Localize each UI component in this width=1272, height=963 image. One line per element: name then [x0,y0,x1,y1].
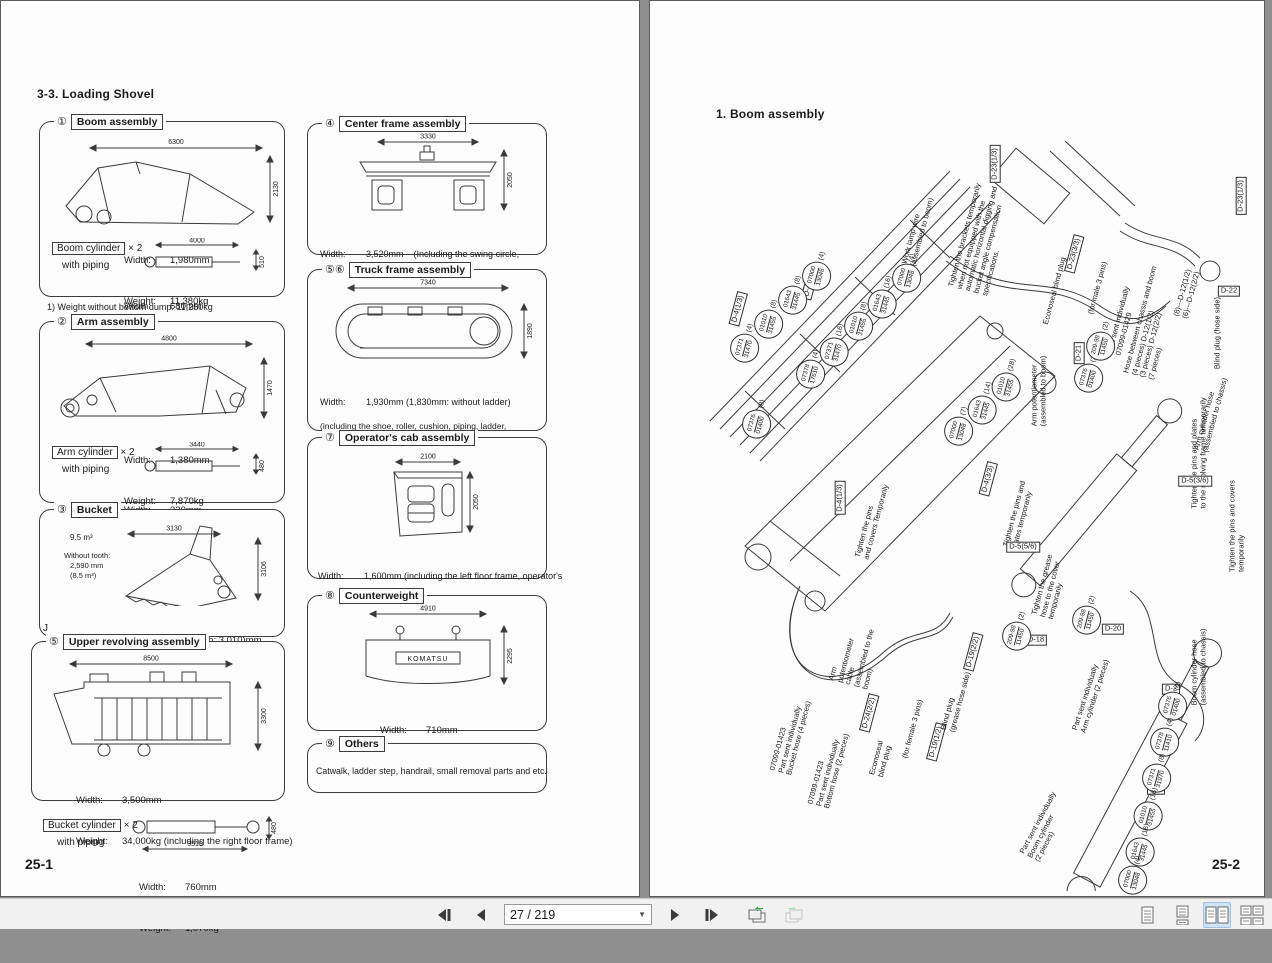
svg-text:4800: 4800 [161,336,177,343]
first-page-button[interactable] [430,902,458,928]
page-layout-group [1133,899,1266,930]
document-page-right: 1. Boom assembly Work lamp wire (assembl… [649,0,1265,897]
facing-view-button[interactable] [1203,902,1231,928]
diagram-annotation: 07099-01423 Part sent individually Botto… [807,728,852,809]
page-number-input[interactable]: 27 / 219 ▼ [504,904,652,925]
detail-ref-label: D-5(3/6) [1178,476,1212,487]
detail-ref-label: D-19(2/2) [963,632,983,671]
others-box: ⑨Others Catwalk, ladder step, handrail, … [307,743,547,793]
truck-frame-box: ⑤⑥Truck frame assembly 7340 1890 Width:1… [307,269,547,431]
detail-ref-label: D-4(3/3) [979,461,998,496]
svg-text:2100: 2100 [420,454,436,461]
others-text: Catwalk, ladder step, handrail, small re… [316,766,547,778]
item-number: ⑨ [325,739,335,750]
svg-text:2130: 2130 [273,181,280,197]
svg-text:3130: 3130 [166,526,182,533]
boom-assembly-box: ①Boom assembly 6300 2130 Width:1,980mm W… [39,121,285,297]
svg-text:2295: 2295 [507,648,514,664]
diagram-annotation: Blind plug (hose side) [1214,297,1223,369]
detail-ref-label: D-22 [1218,286,1240,297]
diagram-annotation: (for female 3 pins) [901,699,925,760]
boom-cylinder-drawing: 4000 510 [140,238,282,272]
part-number-circle: 0700013048(4) [799,248,837,294]
with-piping-note: with piping [57,837,104,848]
svg-text:7340: 7340 [420,280,436,287]
chevron-down-icon[interactable]: ▼ [638,910,646,919]
item-number: ⑤ [49,637,59,648]
bucket-drawing: 3130 3106 9.5 m³ Without tooth: 2,590 mm… [40,514,286,606]
single-page-view-button[interactable] [1133,902,1161,928]
diagram-annotation: (for male 3 pins) [1087,261,1109,316]
part-number-circle: 0101031455(28) [988,355,1027,404]
arm-cylinder-label: Arm cylinder × 2 [52,446,135,459]
next-page-button[interactable] [661,902,689,928]
part-number-circle: 209-9811450(2) [1083,318,1121,364]
diagram-annotation: Arm potentiometer cable (assembled to th… [827,622,884,691]
svg-text:(8.5 m³): (8.5 m³) [70,571,97,580]
arm-cylinder-drawing: 3440 480 [140,442,282,476]
detail-ref-label: D-5(5/6) [1006,542,1040,553]
counterweight-box: ⑧Counterweight 4910 2295 KOMATSU Width:7… [307,595,547,731]
pdf-toolbar: 27 / 219 ▼ [0,898,1272,929]
boom-drawing: 6300 2130 [40,128,286,228]
item-number: ① [57,117,67,128]
bucket-cylinder-label: Bucket cylinder × 2 [43,819,138,832]
arm-drawing: 4800 1470 [40,328,286,426]
diagram-annotation: Blind plug (grease hose side) [940,669,973,733]
counterweight-drawing: 4910 2295 KOMATSU [308,600,548,692]
pdf-viewer-window: { "labels": { "width": "Width:", "weight… [0,0,1272,929]
svg-text:2,590 mm: 2,590 mm [70,561,103,570]
svg-text:4910: 4910 [420,606,436,613]
svg-text:4000: 4000 [189,238,205,245]
diagram-annotation: Boom cylinder hose (assembled to chassis… [1190,629,1207,706]
center-frame-box: ④Center frame assembly 3330 2050 Width:3… [307,123,547,255]
svg-text:510: 510 [259,256,266,268]
arm-assembly-box: ②Arm assembly 4800 1470 Width:1,380mm We… [39,321,285,503]
svg-text:6300: 6300 [168,139,184,146]
svg-text:Without tooth:: Without tooth: [64,551,110,560]
diagram-annotation: Tighten the pins and covers temporarily [1228,480,1245,572]
operators-cab-box: ⑦Operator's cab assembly 2100 2050 Width… [307,437,547,579]
diagram-annotation: 07099-01423 Part sent individually Bucke… [769,696,814,776]
part-number-circle: 209-9811450(2) [999,608,1037,654]
center-frame-drawing: 3330 2050 [308,128,548,218]
stray-mark: J [43,623,48,634]
previous-page-button[interactable] [467,902,495,928]
diagram-annotation: Part sent individually Boom cylinder (2 … [1018,791,1073,864]
diagram-annotation: Tighten the pins and covers Temporarily [854,481,891,560]
svg-text:9.5 m³: 9.5 m³ [70,533,93,542]
section-heading: 3-3. Loading Shovel [37,87,154,101]
detail-ref-label: D-20 [1102,624,1124,635]
svg-text:3510: 3510 [187,841,203,848]
next-view-button[interactable] [780,902,808,928]
svg-text:3106: 3106 [261,561,268,577]
document-page-left: 3-3. Loading Shovel ①Boom assembly 6300 … [0,0,640,897]
detail-ref-label: D-23(1/3) [1236,177,1247,215]
diagram-annotation: Tighten the brackets temporarily when no… [947,181,1017,296]
svg-text:3440: 3440 [189,442,205,449]
continuous-view-button[interactable] [1168,902,1196,928]
continuous-facing-view-button[interactable] [1238,902,1266,928]
item-number: ② [57,317,67,328]
svg-text:480: 480 [259,460,266,472]
last-page-button[interactable] [698,902,726,928]
svg-text:480: 480 [271,822,278,834]
part-number-circle: 0700013048(4) [1115,852,1153,898]
brand-text: KOMATSU [407,656,448,663]
diagram-annotations-layer: Work lamp wire (assembled to boom)Tighte… [650,1,1266,898]
page-number-left: 25-1 [25,856,53,872]
box-title: Others [339,736,385,752]
boom-cylinder-label: Boom cylinder × 2 [52,242,142,255]
boom-footnote: 1) Weight without bottom dump: 11,250kg [47,302,213,312]
svg-text:1890: 1890 [527,323,534,339]
svg-text:2050: 2050 [473,494,480,510]
operators-cab-drawing: 2100 2050 [308,444,548,540]
truck-frame-drawing: 7340 1890 [308,274,548,366]
detail-ref-label: D-23(3/3) [1064,234,1084,273]
diagram-annotation: Tighten the pins and plates temporarily [1002,480,1036,550]
part-number-circle: 0700013048(4) [889,250,927,296]
svg-text:3330: 3330 [420,134,436,141]
previous-view-button[interactable] [743,902,771,928]
part-number-circle: 0737601400(8) [739,396,777,442]
svg-text:2050: 2050 [507,172,514,188]
diagram-annotation: Econoseal blind plug [868,740,894,778]
svg-text:1470: 1470 [267,380,274,396]
diagram-annotation: Tighten the grease hose to the cover tem… [1030,554,1071,621]
svg-text:8500: 8500 [143,656,159,663]
bucket-box: ③Bucket 3130 3106 9.5 m³ Without tooth: … [39,509,285,637]
bucket-cylinder-drawing: 3510 480 [129,811,279,857]
detail-ref-label: D-4(1/3) [835,481,846,515]
upper-revolving-drawing: 8500 3300 [32,648,286,762]
with-piping-note: with piping [62,260,109,271]
diagram-annotation: Part sent individually Arm cylinder (2 p… [1071,656,1111,734]
page-indicator-value: 27 / 219 [510,908,555,922]
page-navigation-group: 27 / 219 ▼ [430,899,808,930]
page-number-right: 25-2 [1212,856,1240,872]
svg-text:3300: 3300 [261,708,268,724]
detail-ref-label: D-24(2/2) [859,693,879,732]
with-piping-note: with piping [62,464,109,475]
upper-revolving-box: ⑤Upper revolving assembly 8500 3300 Widt… [31,641,285,801]
detail-ref-label: D-23(1/3) [990,145,1001,183]
item-number: ⑦ [325,433,335,444]
diagram-annotation: Arm potentiometer (assembled to boom) [1030,356,1047,426]
